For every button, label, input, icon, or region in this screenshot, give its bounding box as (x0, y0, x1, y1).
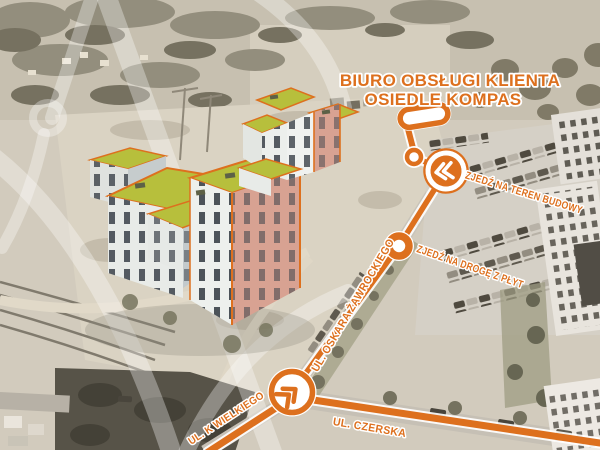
promo-map-page: BIURO OBSŁUGI KLIENTA OSIEDLE KOMPAS ZJE… (0, 0, 600, 450)
junction-chevron-badge-icon (268, 368, 317, 417)
site-map-graphic: BIURO OBSŁUGI KLIENTA OSIEDLE KOMPAS ZJE… (0, 0, 600, 450)
office-title-line1: BIURO OBSŁUGI KLIENTA (340, 71, 560, 90)
route-node-ring-icon (403, 146, 425, 168)
office-title-line2: OSIEDLE KOMPAS (365, 90, 522, 109)
